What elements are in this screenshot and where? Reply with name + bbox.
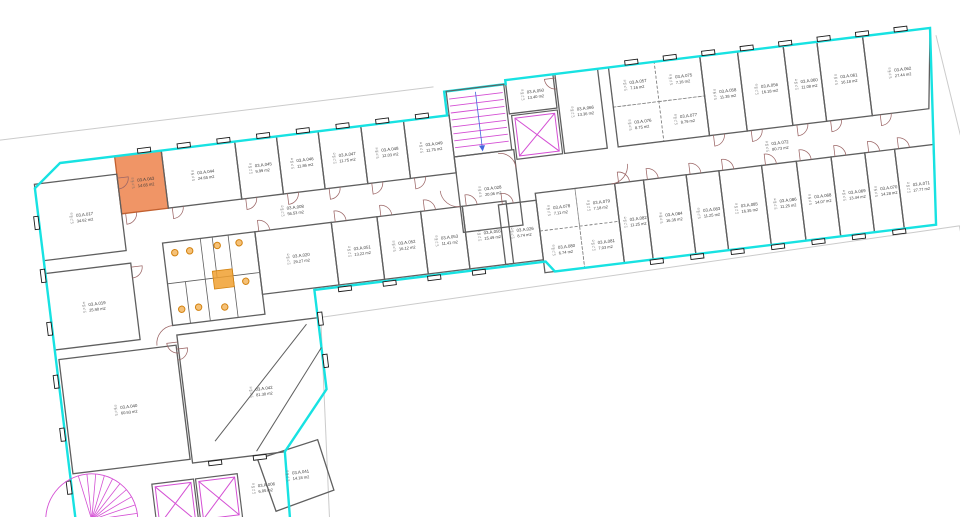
window-tick — [217, 137, 230, 143]
window-tick — [771, 244, 784, 250]
window-tick — [66, 481, 72, 494]
window-tick — [338, 286, 351, 292]
window-tick — [855, 31, 868, 37]
window-tick — [812, 239, 825, 245]
window-tick — [34, 216, 40, 229]
wc-fixture — [242, 278, 249, 285]
window-tick — [53, 375, 59, 388]
wc-fixture — [221, 303, 228, 310]
window-tick — [40, 269, 46, 282]
wc-fixture — [214, 242, 221, 249]
window-tick — [253, 454, 266, 460]
wc-fixture — [235, 239, 242, 246]
window-tick — [650, 259, 663, 265]
wc-fixture — [195, 304, 202, 311]
window-tick — [893, 229, 906, 235]
window-tick — [376, 118, 389, 124]
window-tick — [625, 59, 638, 65]
window-tick — [428, 275, 441, 281]
window-tick — [177, 142, 190, 148]
window-tick — [852, 234, 865, 240]
window-tick — [778, 40, 791, 46]
window-tick — [740, 45, 753, 51]
floor-plan-canvas: IDNRFLLH03.A.04314.65 m2IDNRFLLH03.A.044… — [0, 0, 960, 517]
window-tick — [383, 280, 396, 286]
floor-plan-page: IDNRFLLH03.A.04314.65 m2IDNRFLLH03.A.044… — [0, 0, 960, 517]
wc-fixture — [171, 249, 178, 256]
wc-fixture — [186, 247, 193, 254]
window-tick — [336, 123, 349, 129]
window-tick — [60, 428, 66, 441]
window-tick — [208, 460, 221, 466]
wc-fixture — [178, 306, 185, 313]
window-tick — [472, 269, 485, 275]
window-tick — [323, 354, 329, 367]
window-tick — [691, 254, 704, 260]
window-tick — [663, 54, 676, 60]
shaft — [212, 269, 234, 289]
window-tick — [415, 113, 428, 119]
window-tick — [137, 147, 150, 153]
window-tick — [256, 133, 269, 139]
window-tick — [731, 249, 744, 255]
window-tick — [702, 50, 715, 56]
window-tick — [817, 36, 830, 42]
window-tick — [894, 26, 907, 32]
window-tick — [296, 128, 309, 134]
window-tick — [47, 322, 53, 335]
window-tick — [317, 312, 323, 325]
